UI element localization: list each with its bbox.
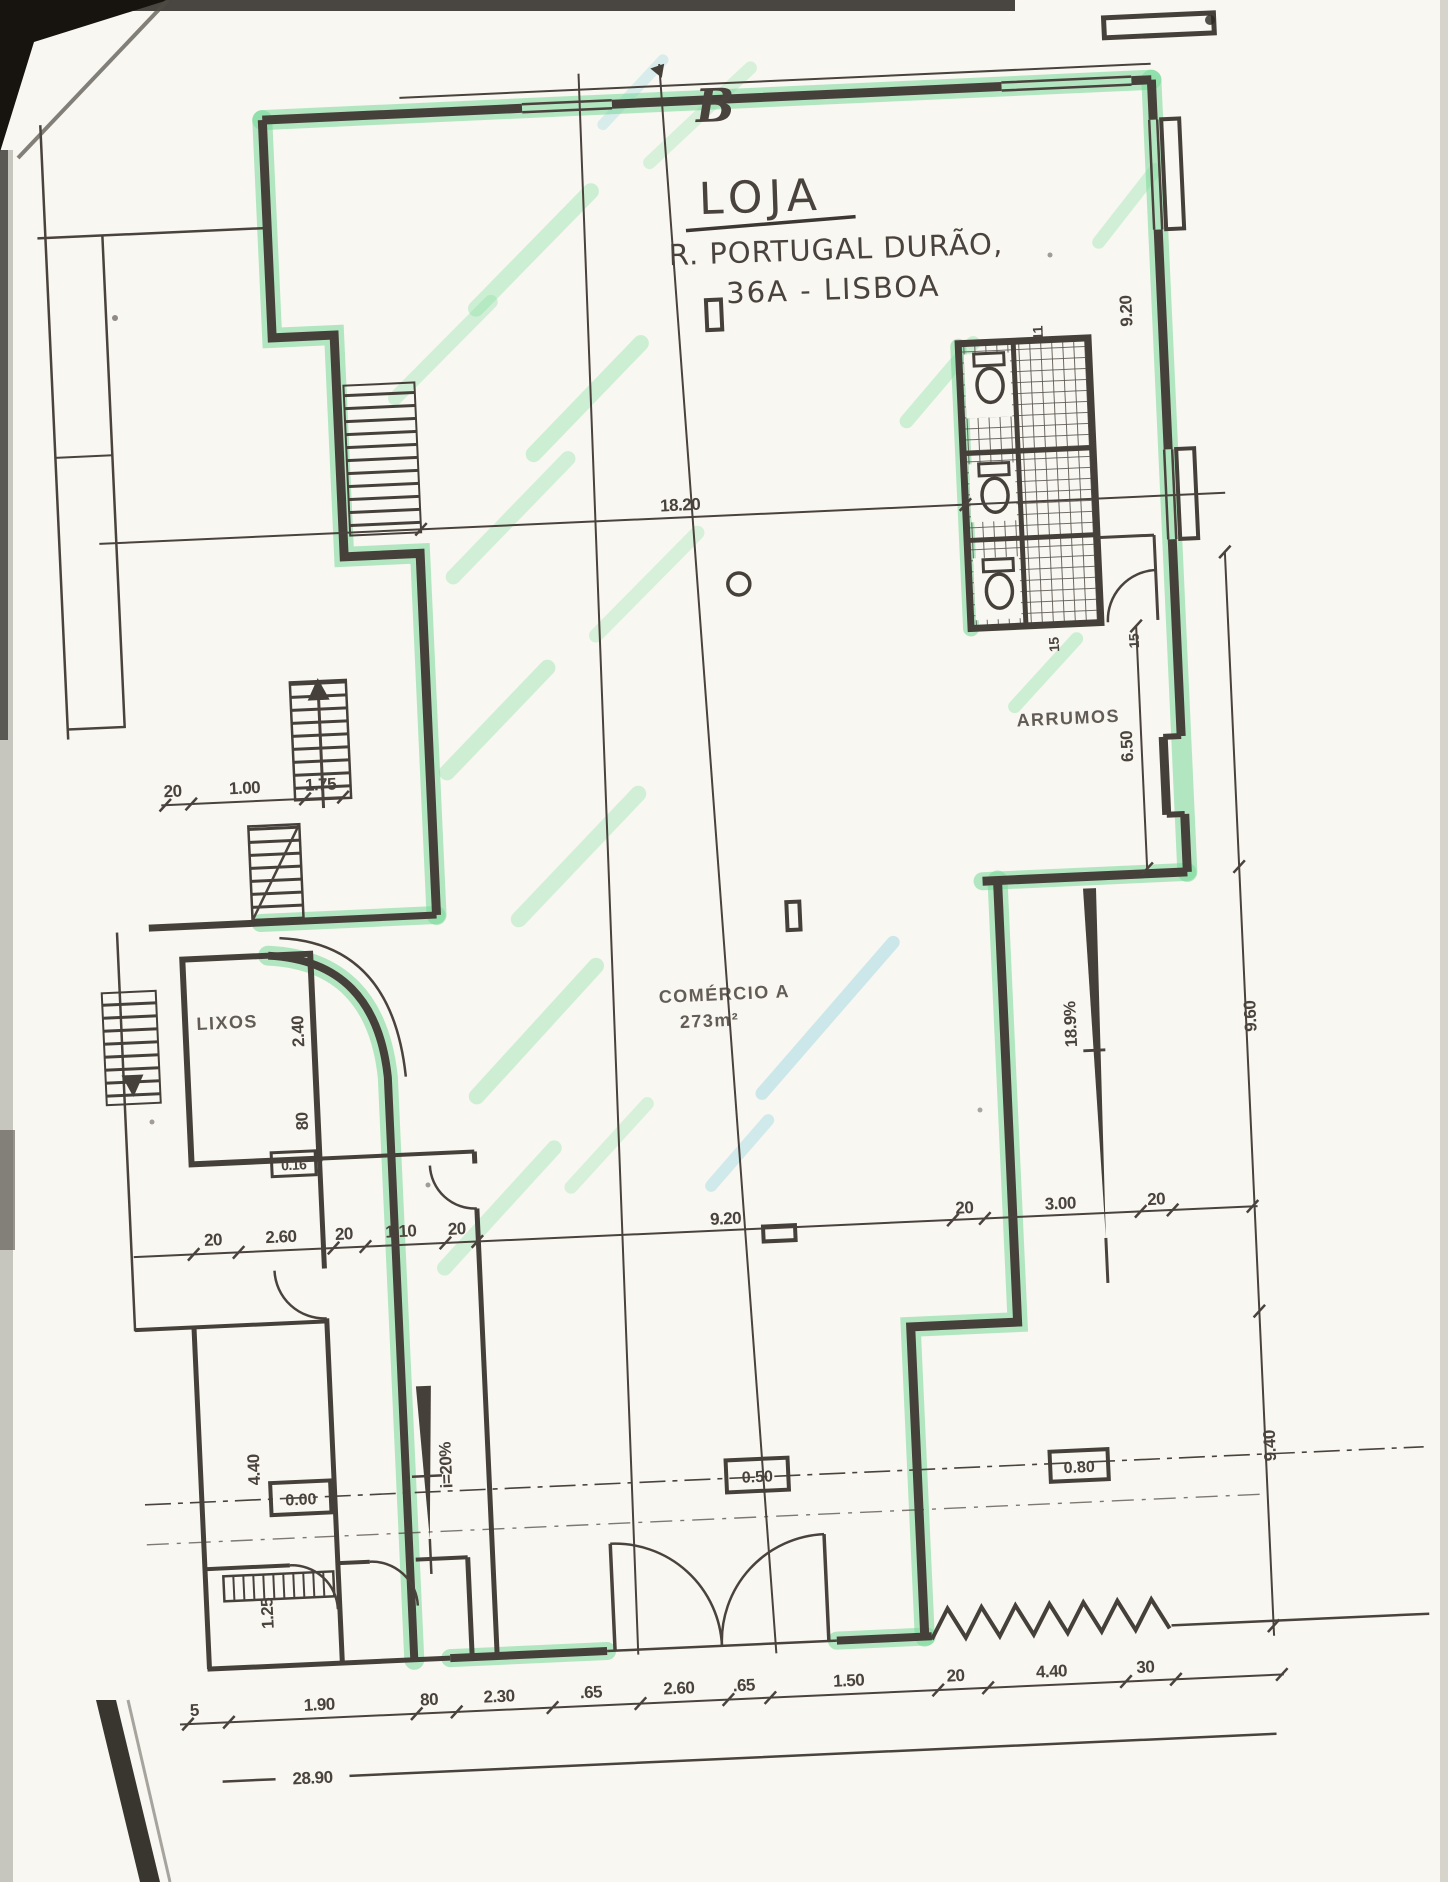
dim-bot-9: 4.40: [1036, 1661, 1068, 1681]
dim-bot-10: 30: [1136, 1657, 1155, 1677]
dim-bot-3: 2.30: [483, 1686, 515, 1706]
dim-right-2: 9.60: [1240, 1000, 1260, 1032]
handwritten-section-letter: B: [693, 78, 736, 133]
dim-bot-4: .65: [579, 1682, 602, 1702]
dim-mid-4: 20: [447, 1219, 466, 1239]
dim-left-2: 4.40: [244, 1454, 264, 1486]
dim-bot-1: 1.90: [303, 1694, 335, 1714]
dim-bot-6: .65: [732, 1675, 755, 1695]
dim-bot-8: 20: [946, 1666, 965, 1686]
room-label-lixos: LIXOS: [196, 1011, 258, 1034]
dim-wc-2: 15: [1125, 633, 1142, 649]
dim-mid-6: 20: [955, 1198, 974, 1218]
dim-left-0: 2.40: [288, 1015, 308, 1047]
dim-total: 28.90: [292, 1768, 333, 1789]
scan-edge-right: [1440, 0, 1448, 1882]
dim-bot-2: 80: [420, 1690, 439, 1710]
dim-left-3: 1.25: [257, 1597, 277, 1629]
floor-plan-canvas: 18.9% i=20% 18.20 20 1.00 1.75: [0, 0, 1448, 1882]
room-label-comercio-area: 273m²: [679, 1009, 739, 1032]
dim-wc-1: 15: [1046, 636, 1063, 652]
handwritten-title: LOJA: [698, 170, 824, 225]
dim-bot-0: 5: [189, 1701, 199, 1720]
dim-mid-2: 20: [335, 1224, 354, 1244]
scanned-floor-plan: 18.9% i=20% 18.20 20 1.00 1.75: [0, 0, 1448, 1882]
dim-wc-0: 11: [1029, 325, 1046, 340]
dim-bot-7: 1.50: [833, 1670, 865, 1690]
dim-mid-1: 2.60: [265, 1227, 297, 1247]
dim-mid-3: 1.10: [385, 1221, 417, 1241]
dim-ul-2: 1.75: [305, 774, 337, 794]
dim-mid-8: 20: [1147, 1189, 1166, 1209]
ramp-left-slope: i=20%: [435, 1441, 456, 1488]
stair-far-left: [102, 991, 161, 1105]
level-small: 0.16: [281, 1156, 308, 1173]
stair-small-left: [248, 824, 303, 920]
dim-mid-7: 3.00: [1044, 1193, 1076, 1213]
dim-bot-5: 2.60: [663, 1678, 695, 1698]
level-zero: 0.00: [285, 1491, 317, 1509]
dim-left-1: 80: [292, 1112, 312, 1131]
stair-top-left: [343, 382, 421, 535]
dim-mid-0: 20: [204, 1230, 223, 1250]
dim-top: 18.20: [660, 495, 701, 516]
level-right: 0.80: [1063, 1459, 1095, 1477]
ramp-right-slope: 18.9%: [1060, 1001, 1081, 1048]
dim-right-0: 9.20: [1116, 295, 1136, 327]
dim-right-3: 9.40: [1260, 1430, 1280, 1462]
dim-ul-0: 20: [163, 781, 182, 801]
level-mid: 0.50: [741, 1468, 773, 1486]
dim-ul-1: 1.00: [229, 778, 261, 798]
dim-mid-5: 9.20: [710, 1209, 742, 1229]
dim-right-1: 6.50: [1117, 731, 1137, 763]
